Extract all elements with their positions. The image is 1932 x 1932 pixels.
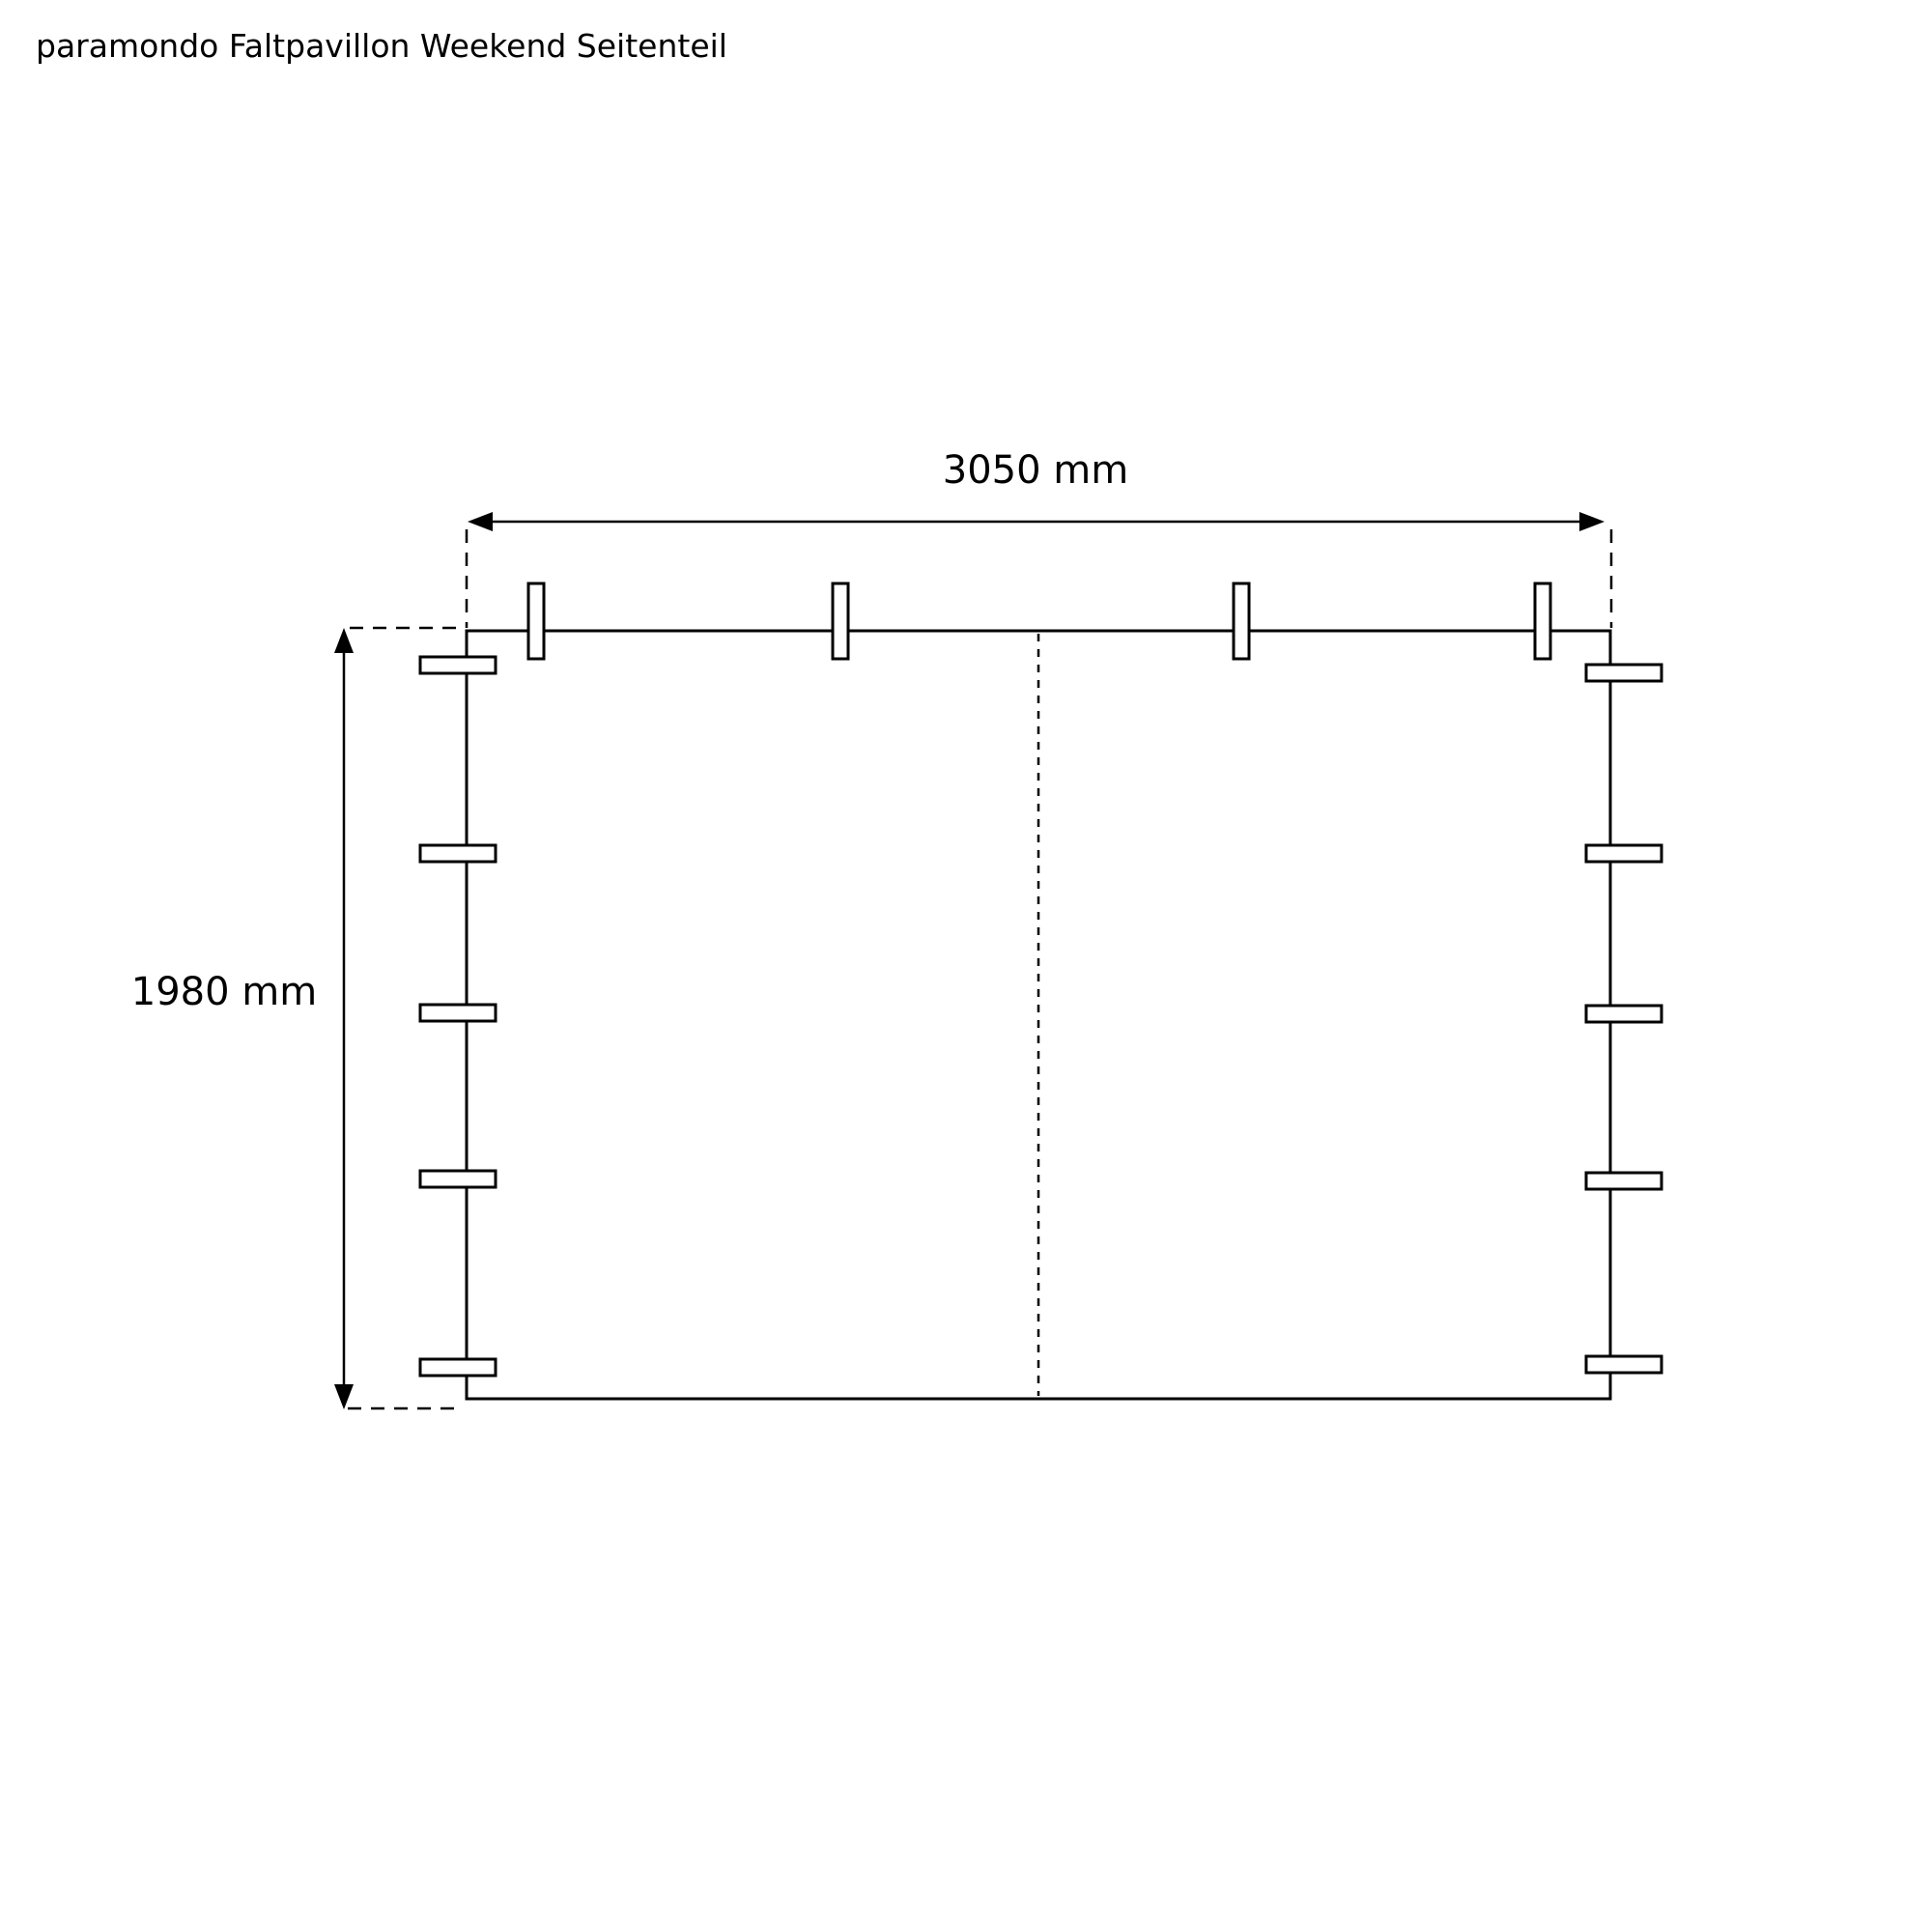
strap — [1586, 1356, 1662, 1373]
strap — [1586, 1006, 1662, 1022]
strap — [1586, 665, 1662, 681]
strap — [1234, 583, 1249, 659]
arrowhead-up — [334, 628, 354, 653]
strap — [833, 583, 848, 659]
strap — [1586, 1173, 1662, 1189]
strap — [420, 1171, 496, 1187]
arrowhead-down — [334, 1384, 354, 1409]
width-dimension-label: 3050 mm — [943, 448, 1128, 493]
height-dimension: 1980 mm — [131, 628, 465, 1409]
strap — [420, 1005, 496, 1021]
strap — [420, 845, 496, 862]
strap — [528, 583, 544, 659]
diagram-canvas: paramondo Faltpavillon Weekend Seitentei… — [0, 0, 1932, 1932]
arrowhead-left — [468, 512, 493, 531]
arrowhead-right — [1579, 512, 1605, 531]
strap — [1586, 845, 1662, 862]
side-panel-drawing: 3050 mm 1980 mm — [0, 0, 1932, 1932]
width-dimension: 3050 mm — [467, 448, 1611, 628]
strap — [420, 1359, 496, 1376]
strap — [1535, 583, 1550, 659]
strap — [420, 657, 496, 673]
height-dimension-label: 1980 mm — [131, 970, 317, 1014]
